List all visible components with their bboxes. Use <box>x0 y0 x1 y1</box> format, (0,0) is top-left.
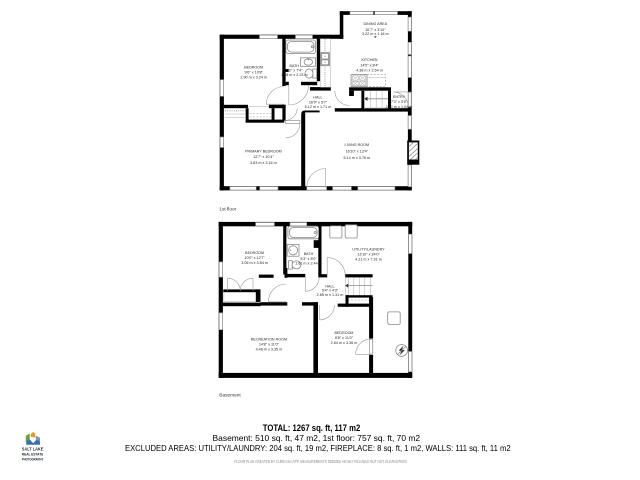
svg-text:TOTAL: 1267 sq. ft, 117 m2: TOTAL: 1267 sq. ft, 117 m2 <box>263 423 361 433</box>
svg-text:16'9" x 5'7": 16'9" x 5'7" <box>309 101 328 105</box>
svg-text:2.85 m x 1.31 m: 2.85 m x 1.31 m <box>317 293 344 297</box>
svg-text:DINING AREA: DINING AREA <box>363 22 387 26</box>
svg-text:KITCHEN: KITCHEN <box>361 58 377 62</box>
svg-text:2.21 m x 1.04 m: 2.21 m x 1.04 m <box>386 105 413 109</box>
svg-text:16'10" x 12'4": 16'10" x 12'4" <box>346 150 369 154</box>
svg-text:10'0" x 12'7": 10'0" x 12'7" <box>244 256 265 260</box>
svg-text:5.12 m x 1.71 m: 5.12 m x 1.71 m <box>305 105 332 109</box>
svg-text:RECREATION ROOM: RECREATION ROOM <box>251 338 287 342</box>
svg-text:FLOOR PLAN CREATED BY CUBICASA: FLOOR PLAN CREATED BY CUBICASA APP. MEAS… <box>234 459 407 464</box>
svg-text:1.61 m x 2.44 m: 1.61 m x 2.44 m <box>295 262 322 266</box>
svg-text:5.14 m x 3.76 m: 5.14 m x 3.76 m <box>343 156 370 160</box>
svg-text:BEDROOM: BEDROOM <box>335 331 354 335</box>
svg-text:HALL: HALL <box>313 96 322 100</box>
svg-text:14'8" x 11'0": 14'8" x 11'0" <box>259 343 280 347</box>
svg-text:13'10" x 24'0": 13'10" x 24'0" <box>357 253 380 257</box>
svg-text:12'7" x 10'4": 12'7" x 10'4" <box>253 155 274 159</box>
svg-text:3.05 m x 3.84 m: 3.05 m x 3.84 m <box>241 261 268 265</box>
svg-text:UTILITY/LAUNDRY: UTILITY/LAUNDRY <box>352 248 385 252</box>
svg-text:3.22 m x 1.16 m: 3.22 m x 1.16 m <box>362 32 389 36</box>
svg-text:BATH: BATH <box>304 252 314 256</box>
svg-text:4.46 m x 3.35 m: 4.46 m x 3.35 m <box>256 347 283 351</box>
svg-text:ENTRY: ENTRY <box>393 95 406 99</box>
svg-text:BEDROOM: BEDROOM <box>245 251 264 255</box>
svg-text:LIVING ROOM: LIVING ROOM <box>345 143 370 147</box>
svg-text:9'6" x 10'8": 9'6" x 10'8" <box>245 71 264 75</box>
svg-text:PHOTOGRAPHY: PHOTOGRAPHY <box>22 457 44 462</box>
svg-text:1.58 m x 2.23 m: 1.58 m x 2.23 m <box>281 73 308 77</box>
svg-text:7'3" x 3'5": 7'3" x 3'5" <box>391 100 408 104</box>
svg-text:2.64 m x 3.36 m: 2.64 m x 3.36 m <box>331 341 358 345</box>
svg-text:Basement: Basement <box>219 393 241 399</box>
svg-text:BEDROOM: BEDROOM <box>244 66 263 70</box>
svg-text:2.90 m x 3.24 m: 2.90 m x 3.24 m <box>240 75 267 79</box>
svg-text:8'8" x 11'0": 8'8" x 11'0" <box>335 336 354 340</box>
svg-text:1st floor: 1st floor <box>219 207 236 213</box>
svg-text:4.21 m x 7.31 m: 4.21 m x 7.31 m <box>355 258 382 262</box>
svg-text:EXCLUDED AREAS: UTILITY/LAUNDR: EXCLUDED AREAS: UTILITY/LAUNDRY: 204 sq.… <box>125 444 511 453</box>
svg-text:5'2" x 7'4": 5'2" x 7'4" <box>286 69 303 73</box>
svg-text:14'5" x 8'4": 14'5" x 8'4" <box>360 63 379 67</box>
svg-text:3.83 m x 3.16 m: 3.83 m x 3.16 m <box>250 161 277 165</box>
svg-text:BATH: BATH <box>290 64 300 68</box>
svg-text:5'3" x 8'0": 5'3" x 8'0" <box>300 257 317 261</box>
svg-text:4.38 m x 2.54 m: 4.38 m x 2.54 m <box>356 68 383 72</box>
svg-text:PRIMARY BEDROOM: PRIMARY BEDROOM <box>245 149 282 153</box>
svg-text:Basement: 510 sq. ft, 47 m2, 1: Basement: 510 sq. ft, 47 m2, 1st floor: … <box>213 434 421 443</box>
